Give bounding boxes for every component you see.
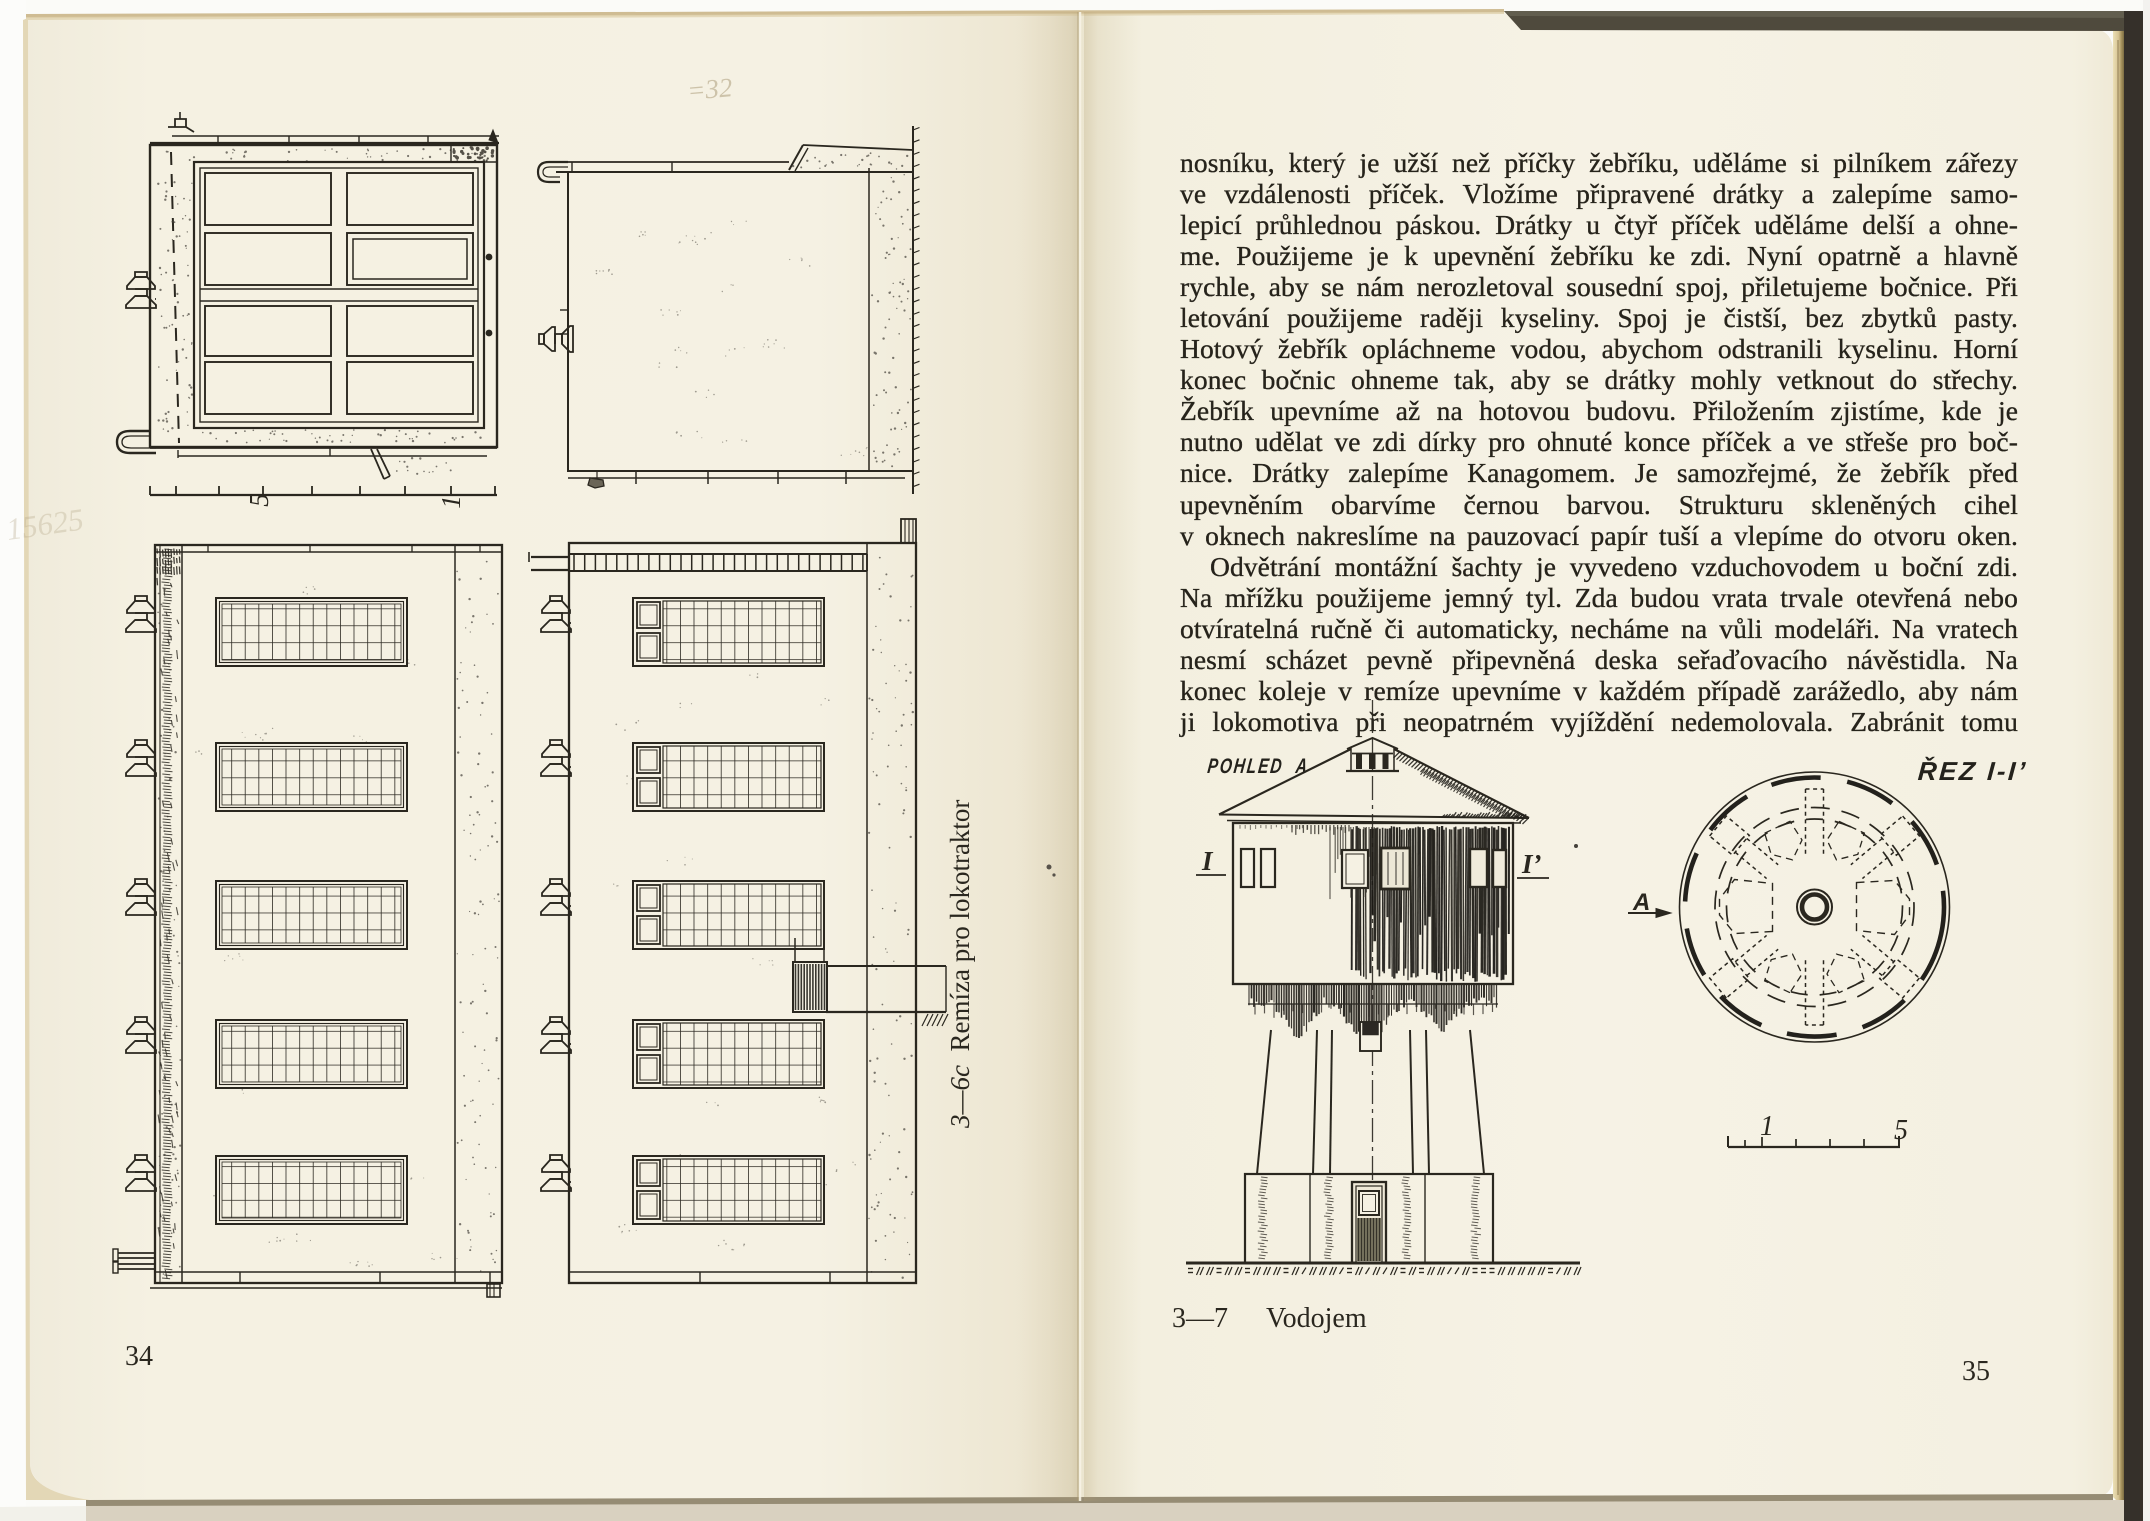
svg-text:A: A: [1632, 889, 1650, 916]
svg-text:I’: I’: [1521, 849, 1542, 879]
svg-text:=32: =32: [686, 72, 734, 106]
svg-text:I: I: [1201, 846, 1214, 876]
svg-text:1: 1: [1760, 1111, 1774, 1142]
svg-text:1: 1: [436, 495, 466, 509]
svg-text:5: 5: [244, 493, 274, 507]
svg-text:5: 5: [1894, 1115, 1908, 1146]
